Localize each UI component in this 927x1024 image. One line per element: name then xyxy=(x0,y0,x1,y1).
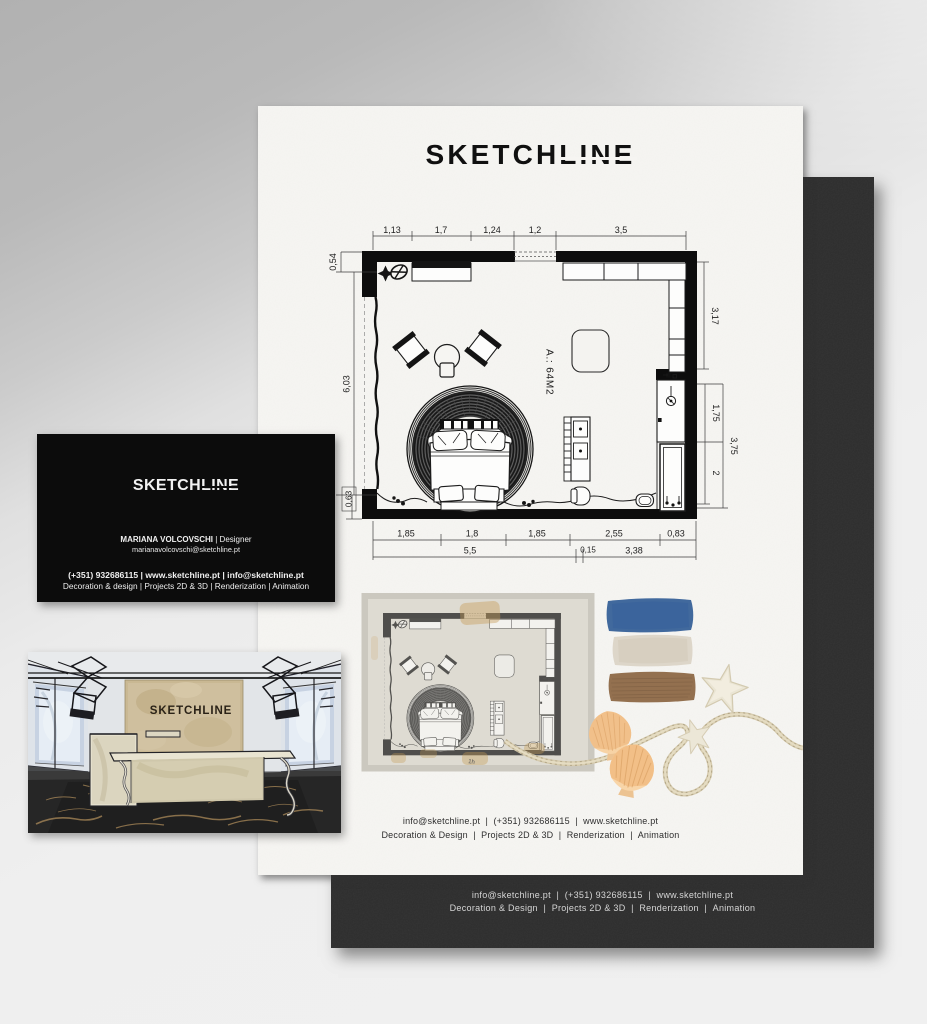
svg-text:1,85: 1,85 xyxy=(528,529,546,539)
svg-text:1,24: 1,24 xyxy=(483,225,501,235)
svg-text:0,15: 0,15 xyxy=(580,546,596,555)
svg-text:2: 2 xyxy=(711,470,721,475)
svg-text:SKETCHLINE: SKETCHLINE xyxy=(150,705,232,717)
svg-text:1,2: 1,2 xyxy=(529,225,542,235)
svg-text:1,13: 1,13 xyxy=(383,225,401,235)
svg-text:1,75: 1,75 xyxy=(711,404,721,422)
svg-text:1h: 1h xyxy=(468,759,475,766)
svg-text:0,63: 0,63 xyxy=(344,490,354,507)
svg-text:1,7: 1,7 xyxy=(435,225,448,235)
svg-text:3,17: 3,17 xyxy=(710,307,720,325)
svg-text:A.: 64M2: A.: 64M2 xyxy=(544,349,555,395)
svg-text:1,85: 1,85 xyxy=(397,529,415,539)
svg-text:0,54: 0,54 xyxy=(328,253,338,271)
svg-text:3,75: 3,75 xyxy=(729,437,739,455)
svg-text:6,03: 6,03 xyxy=(342,375,352,393)
svg-text:2,55: 2,55 xyxy=(605,529,623,539)
svg-text:3,5: 3,5 xyxy=(615,225,628,235)
svg-text:3,38: 3,38 xyxy=(625,546,643,556)
svg-text:5,5: 5,5 xyxy=(464,546,477,556)
svg-text:0,83: 0,83 xyxy=(667,529,685,539)
svg-text:1,8: 1,8 xyxy=(466,529,479,539)
